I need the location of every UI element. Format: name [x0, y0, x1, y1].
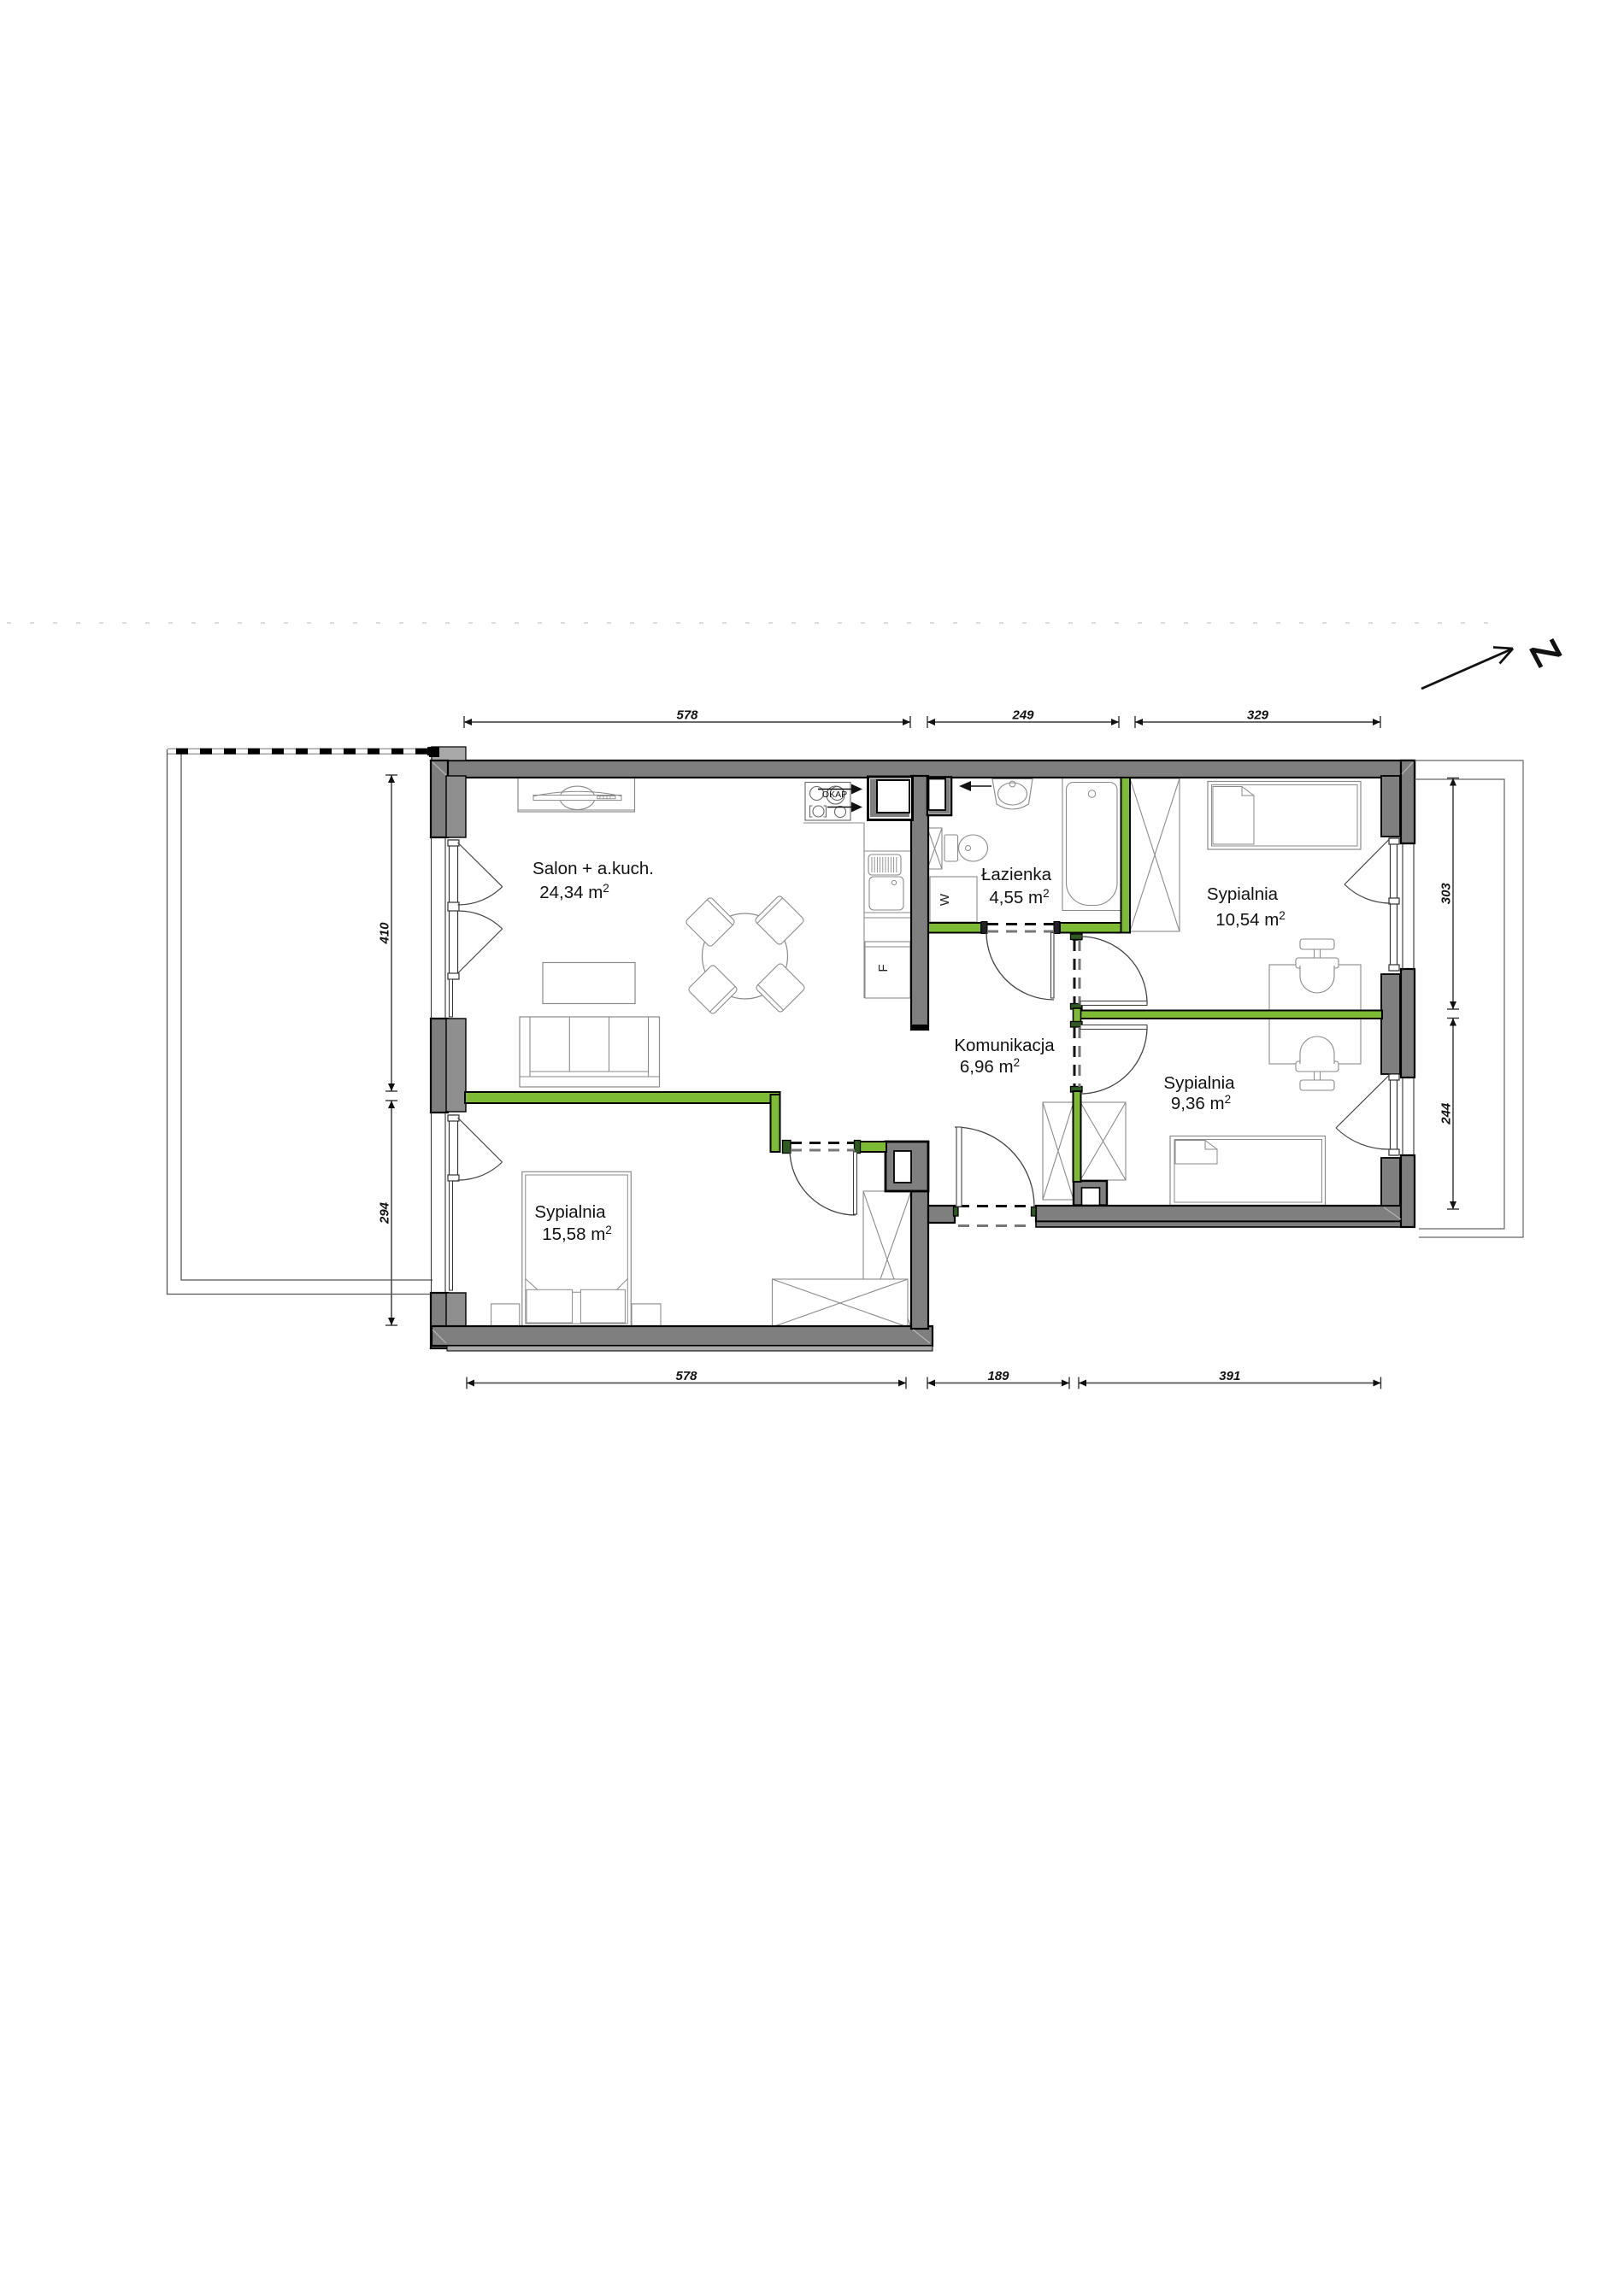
svg-text:10,54 m2: 10,54 m2 — [1215, 909, 1286, 930]
svg-text:F: F — [876, 964, 891, 972]
svg-text:303: 303 — [1439, 883, 1454, 905]
svg-text:4,55 m2: 4,55 m2 — [989, 887, 1049, 907]
svg-text:6,96 m2: 6,96 m2 — [960, 1056, 1020, 1077]
svg-text:Łazienka: Łazienka — [981, 865, 1052, 884]
svg-text:15,58 m2: 15,58 m2 — [542, 1224, 612, 1244]
svg-text:244: 244 — [1439, 1102, 1453, 1125]
svg-text:Salon + a.kuch.: Salon + a.kuch. — [533, 859, 654, 878]
svg-text:OKAP: OKAP — [822, 790, 847, 800]
svg-text:578: 578 — [675, 1369, 697, 1383]
svg-text:410: 410 — [378, 922, 392, 945]
svg-text:578: 578 — [676, 708, 698, 723]
svg-text:329: 329 — [1247, 708, 1269, 723]
svg-text:294: 294 — [378, 1201, 392, 1224]
svg-text:249: 249 — [1011, 708, 1034, 723]
svg-text:Sypialnia: Sypialnia — [534, 1202, 606, 1222]
svg-text:9,36 m2: 9,36 m2 — [1171, 1093, 1231, 1113]
svg-text:189: 189 — [987, 1369, 1009, 1383]
svg-text:Komunikacja: Komunikacja — [954, 1036, 1055, 1055]
svg-text:391: 391 — [1219, 1369, 1240, 1383]
svg-text:24,34 m2: 24,34 m2 — [539, 882, 609, 902]
svg-text:Sypialnia: Sypialnia — [1207, 884, 1279, 904]
svg-text:Sypialnia: Sypialnia — [1163, 1073, 1235, 1093]
svg-text:W: W — [938, 893, 952, 906]
